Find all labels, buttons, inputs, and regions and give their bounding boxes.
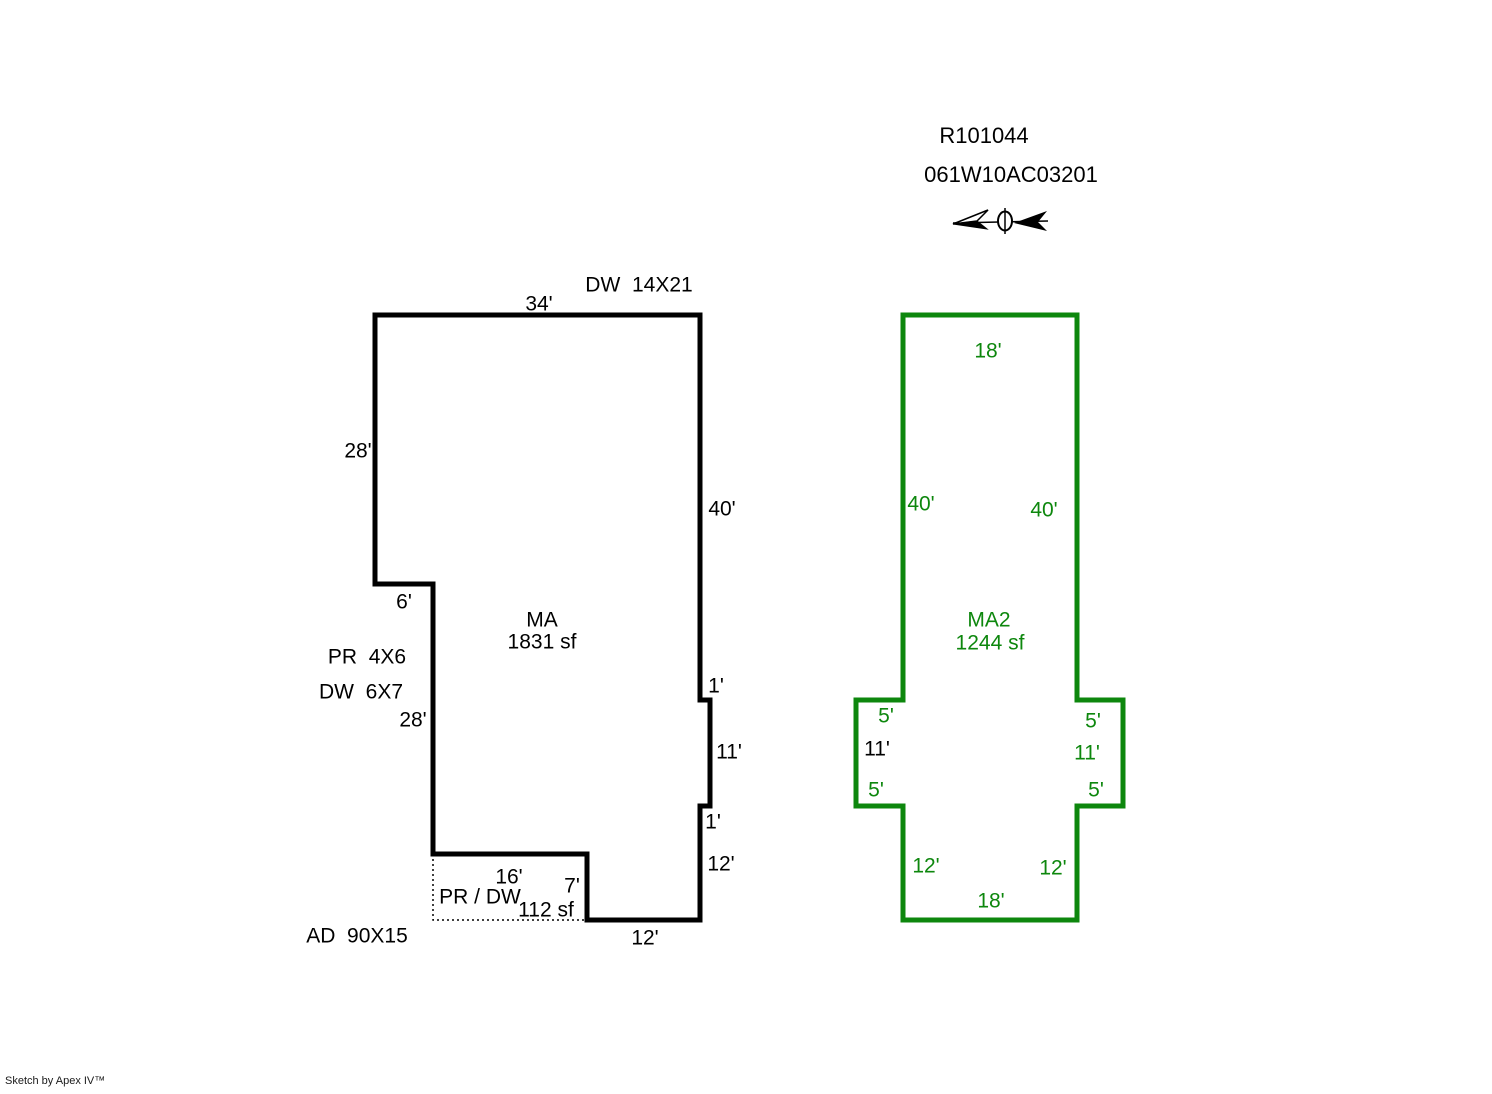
ma-label-dw-lower: DW 6X7 — [319, 682, 403, 703]
ma-dim-bump-top: 1' — [708, 676, 724, 697]
ma-dim-left-upper: 28' — [344, 441, 371, 462]
porch-dim-top: 16' — [495, 867, 522, 888]
ma2-dim-wing-right-bottom: 5' — [1088, 780, 1104, 801]
ma2-dim-wing-right-side: 11' — [1074, 743, 1100, 764]
ma2-dim-top: 18' — [974, 341, 1001, 362]
sketch-page: R101044 061W10AC03201 DW 14X21 34' 28' 4… — [0, 0, 1492, 1094]
ma2-dim-bottom: 18' — [977, 891, 1004, 912]
ma-dim-bump-bottom: 1' — [705, 812, 721, 833]
apex-credit: Sketch by Apex IV™ — [5, 1076, 105, 1087]
porch-name: PR / DW — [439, 887, 521, 908]
ma-dim-right-lower: 12' — [707, 854, 734, 875]
ma-dim-bump-right: 11' — [716, 742, 742, 763]
ma2-dim-bottom-left: 12' — [912, 856, 939, 877]
ma2-dim-wing-left-side: 11' — [864, 739, 890, 760]
sketch-drawing — [0, 0, 1492, 1094]
ma-dim-left-lower: 28' — [399, 710, 426, 731]
parcel-number: 061W10AC03201 — [924, 164, 1098, 186]
sketch-id: R101044 — [939, 125, 1028, 147]
porch-dim-right: 7' — [564, 876, 580, 897]
ma-label-dw-upper: DW 14X21 — [585, 275, 692, 296]
ma2-area: 1244 sf — [956, 633, 1025, 654]
ma-dim-top: 34' — [525, 294, 552, 315]
porch-area: 112 sf — [518, 900, 574, 921]
ma2-dim-left: 40' — [907, 494, 934, 515]
ma2-dim-bottom-right: 12' — [1039, 858, 1066, 879]
ma-label-ad: AD 90X15 — [306, 926, 408, 947]
ma2-dim-right: 40' — [1030, 500, 1057, 521]
ma-dim-step: 6' — [396, 592, 412, 613]
ma2-dim-wing-left-bottom: 5' — [868, 780, 884, 801]
ma2-name: MA2 — [967, 610, 1010, 631]
ma-name: MA — [526, 610, 558, 631]
ma-dim-bottom: 12' — [631, 928, 658, 949]
ma-area: 1831 sf — [508, 632, 577, 653]
north-arrow-icon — [953, 208, 1048, 234]
ma-label-pr: PR 4X6 — [328, 647, 406, 668]
ma2-dim-wing-right-top: 5' — [1085, 711, 1101, 732]
ma-dim-right-upper: 40' — [708, 499, 735, 520]
ma2-dim-wing-left-top: 5' — [878, 706, 894, 727]
